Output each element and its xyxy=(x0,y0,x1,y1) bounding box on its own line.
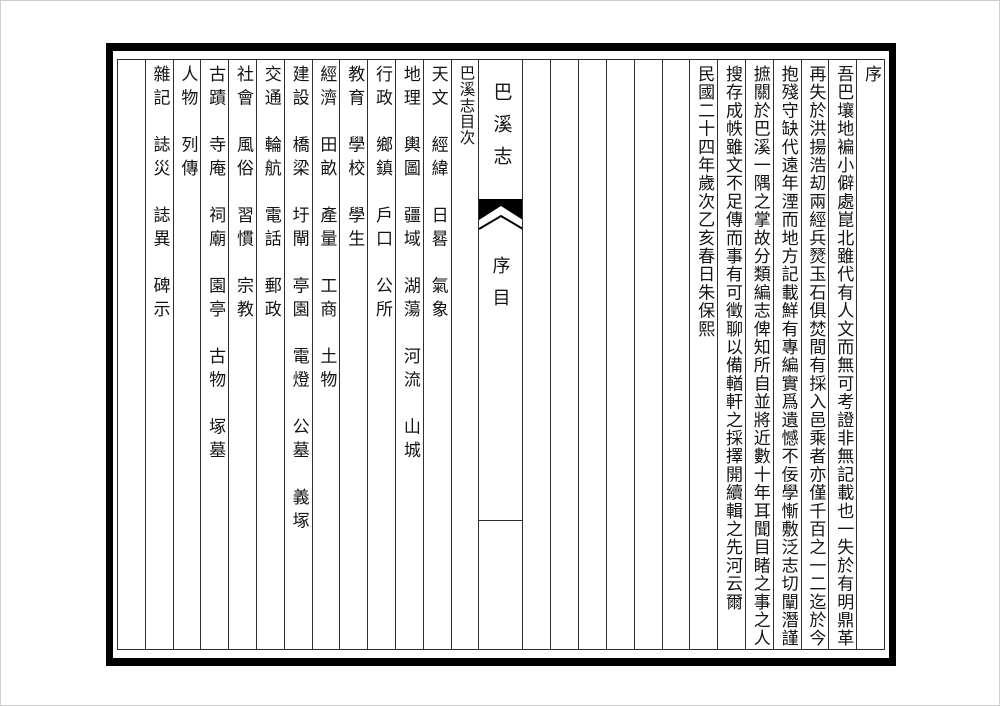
toc-entry-column-7: 交通 輪航 電話 郵政 xyxy=(256,60,284,649)
toc-entry-column-9: 古蹟 寺庵 祠廟 園亭 古物 塚墓 xyxy=(200,60,228,649)
blank-column xyxy=(606,60,634,649)
preface-line-1-column: 吾巴壤地褊小僻處崑北雖代有人文而無可考證非無記載也一失於有明鼎革 xyxy=(828,60,856,649)
toc-entry-column-11: 雜記 誌災 誌異 碑示 xyxy=(145,60,173,649)
preface-signature-column: 民國二十四年歲次乙亥春日朱保熙 xyxy=(689,60,717,649)
toc-entry-column-3: 行政 鄉鎮 戶口 公所 xyxy=(367,60,395,649)
toc-entry-column-5: 經濟 田畝 產量 工商 土物 xyxy=(312,60,340,649)
toc-entry-column-10: 人物 列傳 xyxy=(173,60,201,649)
preface-heading-column: 序 xyxy=(856,60,884,649)
toc-entry-column-1: 天文 經緯 日晷 氣象 xyxy=(423,60,451,649)
banxin-section-label: 序目 xyxy=(479,256,522,320)
preface-line-5-column: 搜存成帙雖文不足傳而事有可徵聊以備輶軒之採擇開續輯之先河云爾 xyxy=(717,60,745,649)
blank-column xyxy=(522,60,550,649)
blank-column xyxy=(550,60,578,649)
book-title: 巴溪志 xyxy=(479,82,522,178)
banxin-divider xyxy=(479,520,522,521)
blank-column xyxy=(578,60,606,649)
toc-title-column: 巴溪志目次 xyxy=(451,60,479,649)
toc-entry-column-4: 教育 學校 學生 xyxy=(339,60,367,649)
preface-line-3-column: 抱殘守缺代遠年湮而地方記載鮮有專編實爲遺憾不佞學慚敷泛志切闡潛謹 xyxy=(773,60,801,649)
toc-entry-column-8: 社會 風俗 習慣 宗教 xyxy=(228,60,256,649)
preface-line-4-column: 摭關於巴溪一隅之掌故分類編志俾知所自並將近數十年耳聞目睹之事之人 xyxy=(745,60,773,649)
preface-line-2-column: 再失於洪揚浩刧兩經兵燹玉石俱焚間有採入邑乘者亦僅千百之一二迄於今 xyxy=(801,60,829,649)
toc-entry-column-2: 地理 輿圖 疆域 湖蕩 河流 山城 xyxy=(395,60,423,649)
blank-column xyxy=(118,60,145,649)
toc-entry-column-6: 建設 橋梁 圩閘 亭園 電燈 公墓 義塚 xyxy=(284,60,312,649)
column-grid: 序吾巴壤地褊小僻處崑北雖代有人文而無可考證非無記載也一失於有明鼎革再失於洪揚浩刧… xyxy=(117,59,885,650)
page-frame: 序吾巴壤地褊小僻處崑北雖代有人文而無可考證非無記載也一失於有明鼎革再失於洪揚浩刧… xyxy=(106,43,896,666)
banxin-column: 巴溪志序目 xyxy=(478,60,522,649)
blank-column xyxy=(662,60,690,649)
scanned-book-page: 序吾巴壤地褊小僻處崑北雖代有人文而無可考證非無記載也一失於有明鼎革再失於洪揚浩刧… xyxy=(0,0,1000,706)
blank-column xyxy=(634,60,662,649)
fishtail-icon xyxy=(479,198,522,234)
